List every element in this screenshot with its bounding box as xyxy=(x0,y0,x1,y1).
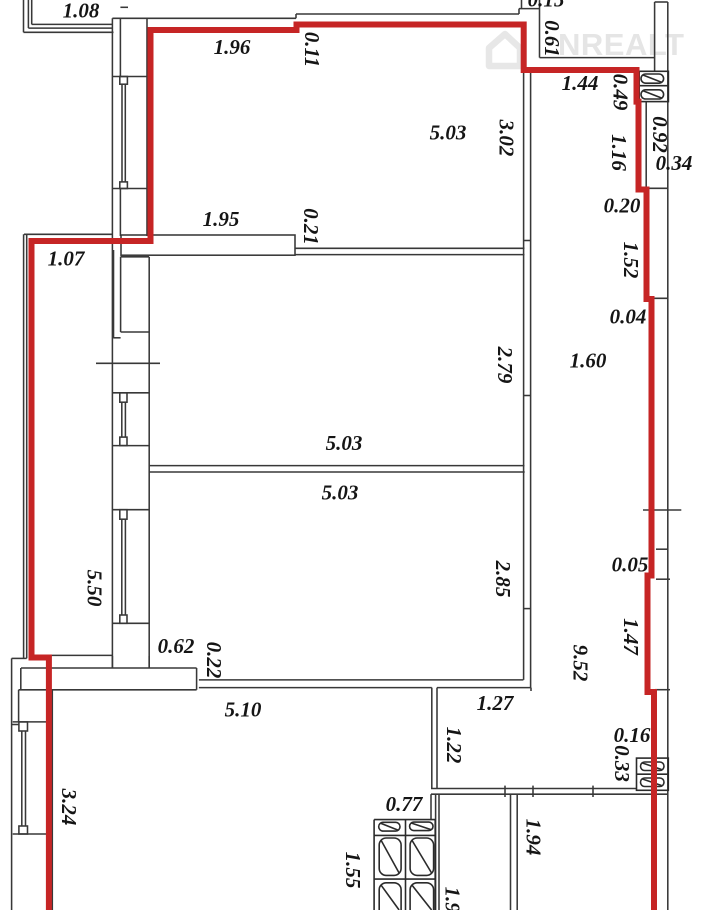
svg-text:0.05: 0.05 xyxy=(612,553,649,577)
svg-text:5.03: 5.03 xyxy=(430,121,467,145)
svg-text:1.55: 1.55 xyxy=(341,852,365,889)
svg-text:1.60: 1.60 xyxy=(570,349,607,373)
svg-text:3.02: 3.02 xyxy=(495,119,519,157)
svg-text:0.62: 0.62 xyxy=(158,634,195,658)
svg-text:0.22: 0.22 xyxy=(202,642,226,679)
svg-text:1.52: 1.52 xyxy=(619,242,643,279)
svg-text:5.03: 5.03 xyxy=(322,481,359,505)
svg-text:0.77: 0.77 xyxy=(386,792,424,816)
svg-text:0.33: 0.33 xyxy=(610,745,634,782)
svg-text:5.03: 5.03 xyxy=(326,431,363,455)
svg-text:2.85: 2.85 xyxy=(491,560,515,598)
svg-text:1.94: 1.94 xyxy=(522,819,546,856)
svg-text:0.20: 0.20 xyxy=(604,194,641,218)
svg-text:NREALT: NREALT xyxy=(558,27,684,62)
svg-text:2.79: 2.79 xyxy=(493,346,517,384)
svg-text:1.27: 1.27 xyxy=(477,691,515,715)
svg-text:9.52: 9.52 xyxy=(569,645,593,682)
svg-text:5.10: 5.10 xyxy=(225,698,262,722)
svg-text:0.21: 0.21 xyxy=(299,208,323,245)
svg-text:0.92: 0.92 xyxy=(648,116,672,153)
svg-text:1.07: 1.07 xyxy=(48,247,86,271)
svg-text:0.34: 0.34 xyxy=(656,151,693,175)
svg-text:5.50: 5.50 xyxy=(83,570,107,607)
svg-text:3.24: 3.24 xyxy=(57,788,81,826)
svg-text:0.16: 0.16 xyxy=(614,723,651,747)
svg-text:1.95: 1.95 xyxy=(203,207,240,231)
svg-text:0.49: 0.49 xyxy=(609,74,633,111)
svg-text:0.61: 0.61 xyxy=(540,20,564,57)
svg-text:1.94: 1.94 xyxy=(441,887,465,910)
svg-text:1.44: 1.44 xyxy=(562,71,599,95)
svg-text:1.96: 1.96 xyxy=(214,35,251,59)
svg-text:0.11: 0.11 xyxy=(300,32,324,68)
svg-text:1.22: 1.22 xyxy=(442,727,466,764)
svg-text:1.16: 1.16 xyxy=(607,134,631,171)
svg-text:1.47: 1.47 xyxy=(619,618,643,656)
svg-text:0.15: 0.15 xyxy=(528,0,565,12)
svg-text:1.08: 1.08 xyxy=(63,0,100,23)
svg-text:0.04: 0.04 xyxy=(610,305,647,329)
